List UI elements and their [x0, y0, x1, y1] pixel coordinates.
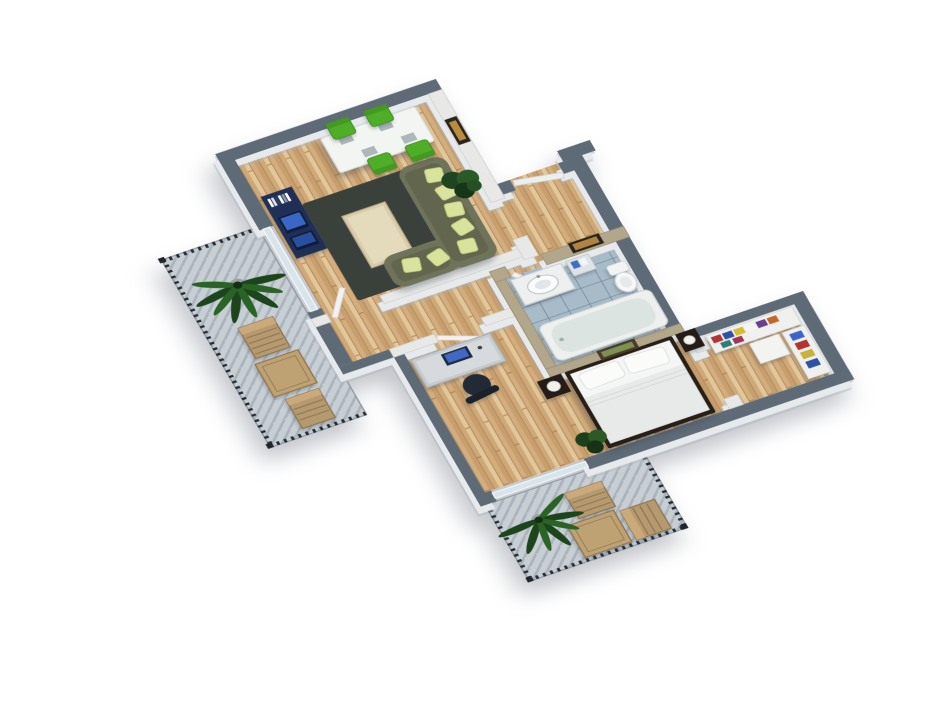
floorplan-svg	[0, 0, 940, 705]
floorplan-image	[0, 0, 940, 705]
apartment-scene	[116, 9, 899, 634]
floors	[235, 25, 834, 509]
